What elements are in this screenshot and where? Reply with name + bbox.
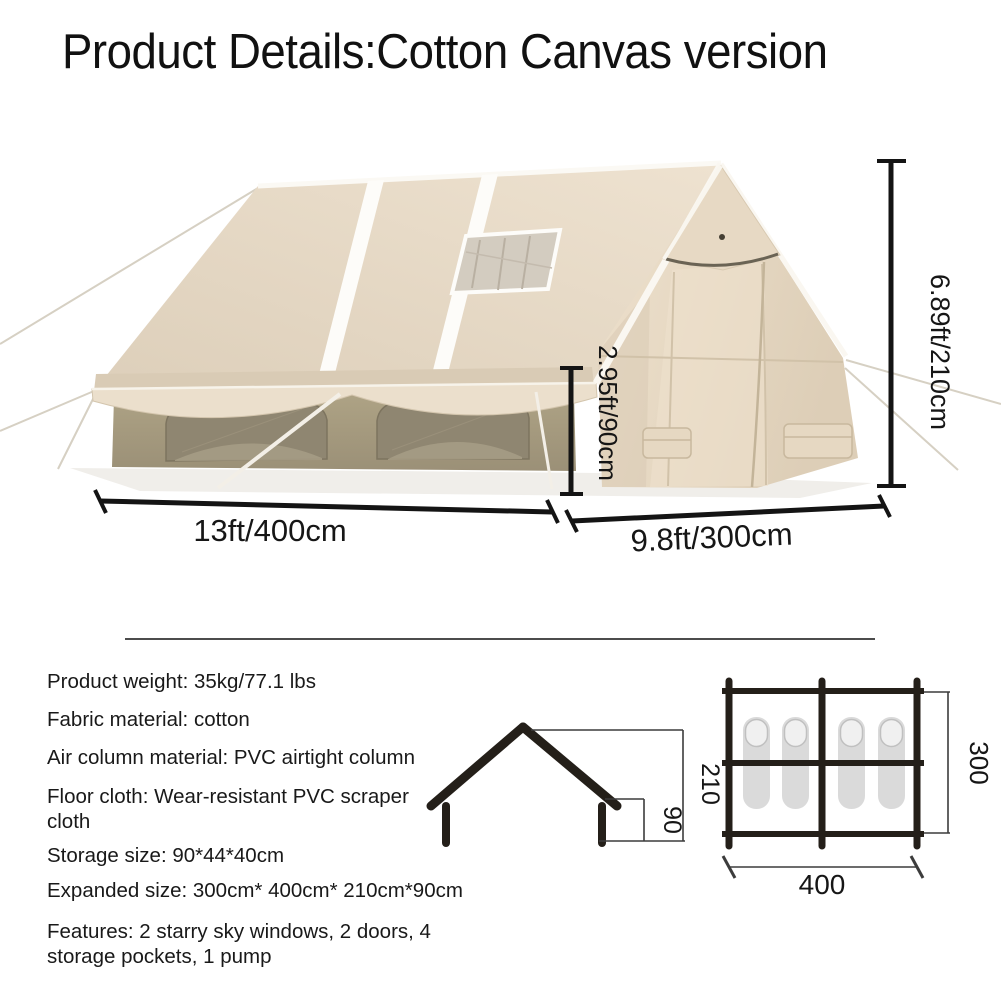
skylight-window bbox=[452, 230, 560, 293]
profile-wall-height-label: 90 bbox=[658, 806, 686, 834]
section-divider bbox=[125, 638, 875, 640]
height-dimension-label: 6.89ft/210cm bbox=[925, 274, 955, 430]
tent-photo: 6.89ft/210cm 2.95ft/90cm 13ft/400cm 9.8f… bbox=[0, 140, 1001, 560]
profile-height-label: 210 bbox=[696, 763, 724, 805]
floorplan-length-label: 400 bbox=[799, 869, 846, 900]
depth-dimension-label: 9.8ft/300cm bbox=[630, 516, 793, 558]
tent-illustration bbox=[0, 163, 1001, 498]
floorplan-diagram: 300 400 bbox=[722, 681, 994, 900]
product-detail-page: Product Details:Cotton Canvas version bbox=[0, 0, 1001, 1001]
floorplan-depth-label: 300 bbox=[964, 741, 994, 784]
floorplan-grid bbox=[722, 681, 924, 846]
profile-diagram: 210 90 bbox=[431, 727, 724, 843]
length-dimension-label: 13ft/400cm bbox=[193, 513, 346, 548]
vent-hole bbox=[719, 234, 725, 240]
wall-height-dimension-label: 2.95ft/90cm bbox=[593, 345, 623, 481]
dimension-diagrams: 210 90 bbox=[0, 650, 1001, 950]
page-title: Product Details:Cotton Canvas version bbox=[62, 24, 827, 80]
profile-shape bbox=[431, 727, 617, 843]
